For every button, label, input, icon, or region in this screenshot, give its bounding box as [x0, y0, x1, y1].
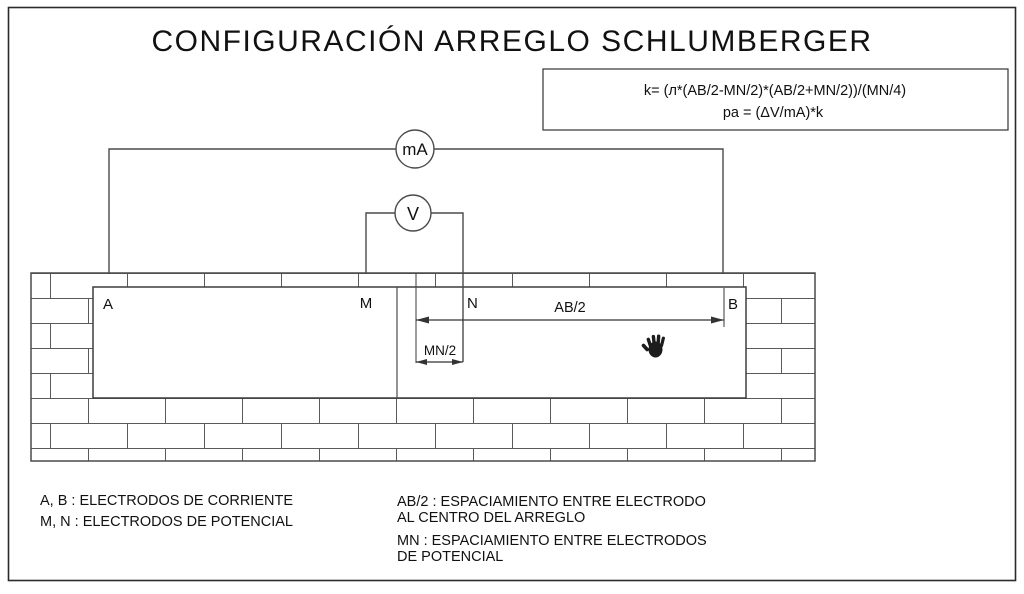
geometric-factor-formula: k= (л*(AB/2-MN/2)*(AB/2+MN/2))/(MN/4): [644, 83, 906, 99]
legend-mn-line2: DE POTENCIAL: [397, 549, 503, 565]
legend-ab2-line2: AL CENTRO DEL ARREGLO: [397, 510, 585, 526]
electrode-b-label: B: [728, 296, 738, 313]
ammeter-label: mA: [402, 140, 428, 159]
legend-potential-electrodes: M, N : ELECTRODOS DE POTENCIAL: [40, 514, 293, 530]
apparent-resistivity-formula: pa = (ΔV/mA)*k: [723, 105, 824, 121]
schlumberger-configuration-page: CONFIGURACIÓN ARREGLO SCHLUMBERGER k= (л…: [0, 0, 1024, 589]
current-wire-left: [109, 149, 396, 274]
legend-ab2-line1: AB/2 : ESPACIAMIENTO ENTRE ELECTRODO: [397, 494, 706, 510]
voltmeter-label: V: [407, 204, 419, 224]
electrode-a-label: A: [103, 296, 113, 313]
page-title: CONFIGURACIÓN ARREGLO SCHLUMBERGER: [151, 25, 872, 58]
mn2-dimension-label: MN/2: [424, 343, 456, 358]
ab2-dimension-label: AB/2: [554, 300, 585, 316]
electrode-m-label: M: [360, 295, 373, 312]
current-wire-right: [434, 149, 723, 274]
schlumberger-diagram: CONFIGURACIÓN ARREGLO SCHLUMBERGER k= (л…: [0, 0, 1024, 589]
legend-mn-line1: MN : ESPACIAMIENTO ENTRE ELECTRODOS: [397, 533, 707, 549]
electrode-n-label: N: [467, 295, 478, 312]
potential-wire-left: [366, 213, 395, 274]
legend-current-electrodes: A, B : ELECTRODOS DE CORRIENTE: [40, 493, 293, 509]
